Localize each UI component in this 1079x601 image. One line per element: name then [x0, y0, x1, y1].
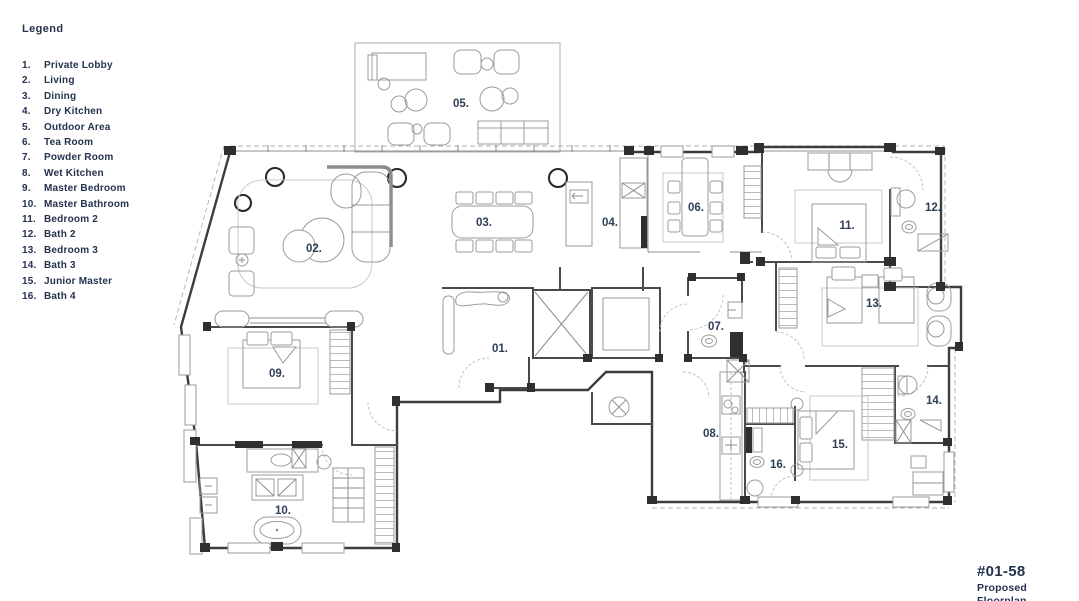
- room-bath-2: [891, 188, 948, 251]
- room-master-bathroom: [184, 430, 394, 554]
- room-label-master-bedroom: 09.: [269, 368, 285, 380]
- room-private-lobby: [443, 292, 649, 417]
- room-label-junior-master: 15.: [832, 439, 848, 451]
- room-label-bath-2: 12.: [925, 202, 941, 214]
- room-dining: [452, 192, 533, 252]
- room-label-bedroom-3: 13.: [866, 298, 882, 310]
- title-block: #01-58 Proposed Floorplan: [977, 563, 1079, 601]
- room-bedroom-2: [795, 153, 882, 262]
- room-bedroom-3: [779, 267, 951, 346]
- room-label-wet-kitchen: 08.: [703, 428, 719, 440]
- room-dry-kitchen: [566, 158, 647, 248]
- room-label-bath-4: 16.: [770, 459, 786, 471]
- room-label-private-lobby: 01.: [492, 343, 508, 355]
- room-label-bedroom-2: 11.: [839, 220, 854, 232]
- room-label-dining: 03.: [476, 217, 492, 229]
- room-wet-kitchen: [720, 372, 742, 500]
- room-living: [229, 167, 567, 296]
- room-tea-room: [663, 158, 761, 242]
- room-label-living: 02.: [306, 243, 322, 255]
- room-label-dry-kitchen: 04.: [602, 217, 618, 229]
- room-label-master-bathroom: 10.: [275, 505, 291, 517]
- room-label-tea-room: 06.: [688, 202, 704, 214]
- floorplan-page: Legend 1.Private Lobby2.Living3.Dining4.…: [0, 0, 1079, 601]
- room-label-bath-3: 14.: [926, 395, 942, 407]
- plan-subtitle: Proposed Floorplan: [977, 582, 1079, 601]
- room-label-outdoor-area: 05.: [453, 98, 469, 110]
- floorplan-drawing: 01.02.03.04.05.06.07.08.09.10.11.12.13.1…: [0, 0, 1079, 601]
- unit-number: #01-58: [977, 563, 1079, 582]
- room-bath-4: [746, 427, 764, 496]
- room-label-powder-room: 07.: [708, 321, 724, 333]
- room-powder-room: [702, 302, 750, 382]
